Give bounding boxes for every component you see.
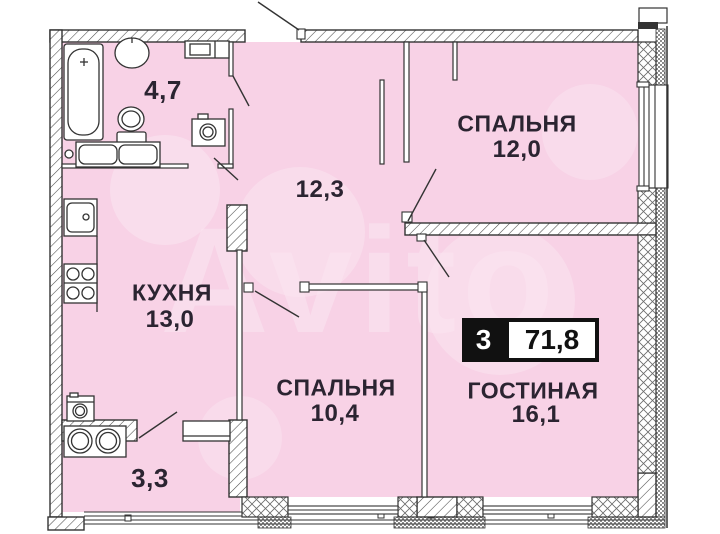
bedroom-top-name-label: СПАЛЬНЯ: [457, 113, 576, 136]
kitchen-area-label: 13,0: [146, 308, 195, 332]
washer-bathroom-icon: [192, 114, 225, 146]
washbasin-icon: [115, 38, 149, 68]
toilet-icon: [117, 107, 146, 143]
bedroom-top-area-label: 12,0: [493, 138, 542, 162]
stove-icon: [64, 264, 97, 303]
floor-plan: Avito: [0, 0, 720, 534]
bathtub-icon: [64, 44, 103, 140]
area-badge: 3 71,8: [462, 318, 599, 362]
hallway-area-label: 12,3: [296, 178, 345, 202]
laundry-counter-icon: [64, 426, 126, 457]
vanity-icon: [65, 142, 160, 167]
upper-balcony: [639, 8, 667, 23]
cabinet-icon: [185, 41, 229, 58]
living-area-label: 16,1: [512, 403, 561, 427]
bathroom-area-label: 4,7: [144, 77, 182, 103]
laundry-area-label: 3,3: [131, 465, 169, 491]
badge-total-area: 71,8: [505, 318, 599, 362]
bedroom-bottom-name-label: СПАЛЬНЯ: [276, 377, 395, 400]
living-name-label: ГОСТИНАЯ: [468, 380, 599, 403]
shelf-icon: [183, 421, 230, 441]
floor-plan-canvas: Avito: [0, 0, 720, 534]
badge-rooms-count: 3: [462, 318, 505, 362]
kitchen-name-label: КУХНЯ: [132, 282, 212, 305]
washer-laundry-icon: [67, 393, 94, 421]
bedroom-bottom-area-label: 10,4: [311, 402, 360, 426]
